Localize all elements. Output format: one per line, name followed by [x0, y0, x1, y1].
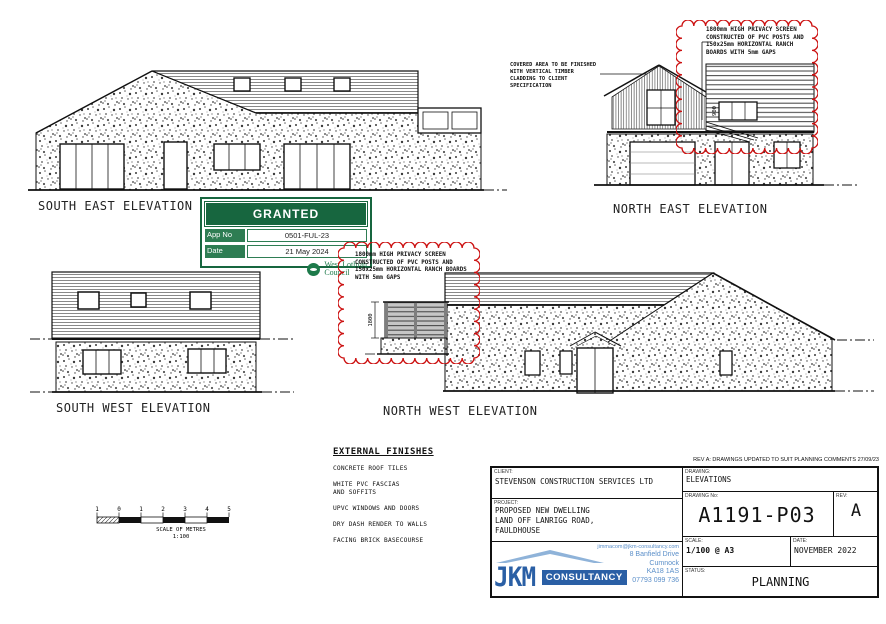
- finish-item: UPVC WINDOWS AND DOORS: [333, 505, 483, 513]
- west-lothian-council-logo-icon: [307, 263, 320, 276]
- scale-bar: 1 0 1 2 3 4 5 SCALE OF METRES 1:100: [93, 503, 243, 541]
- external-finishes-list: EXTERNAL FINISHES CONCRETE ROOF TILES WH…: [333, 447, 483, 545]
- revision-note: REV A: DRAWINGS UPDATED TO SUIT PLANNING…: [490, 457, 879, 463]
- date-label: DATE:: [791, 537, 878, 544]
- privacy-screen-note-nw: 1800mm HIGH PRIVACY SCREEN CONSTRUCTED O…: [355, 252, 467, 282]
- south-west-elevation-label: SOUTH WEST ELEVATION: [56, 401, 211, 415]
- scale-number: 1: [95, 506, 99, 513]
- app-no-label: App No: [205, 229, 245, 242]
- finish-item: FACING BRICK BASECOURSE: [333, 537, 483, 545]
- date-label: Date: [205, 245, 245, 258]
- jkm-logo-text: JKM: [494, 562, 535, 593]
- client-value: STEVENSON CONSTRUCTION SERVICES LTD: [492, 477, 682, 486]
- contact-phone: 07793 099 736: [597, 577, 679, 586]
- scale-number: 1: [139, 506, 143, 513]
- scale-number: 3: [183, 506, 187, 513]
- contact-email: jimmacom@jkm-consultancy.com: [597, 544, 679, 551]
- finish-item: CONCRETE ROOF TILES: [333, 465, 483, 473]
- scale-number: 0: [117, 506, 121, 513]
- scale-label: SCALE:: [683, 537, 790, 544]
- status-value: PLANNING: [683, 575, 878, 589]
- external-finishes-title: EXTERNAL FINISHES: [333, 447, 483, 457]
- south-east-elevation-label: SOUTH EAST ELEVATION: [38, 199, 193, 213]
- project-label: PROJECT:: [492, 499, 682, 506]
- drawing-sheet: SOUTH EAST ELEVATION GRANTED App No 0501…: [0, 0, 886, 624]
- rev-label: REV:: [834, 492, 878, 499]
- drawing-label: DRAWING:: [683, 468, 878, 475]
- drawing-no-value: A1191-P03: [683, 503, 831, 527]
- scale-ratio: 1:100: [173, 534, 190, 540]
- north-east-elevation-label: NORTH EAST ELEVATION: [613, 202, 768, 216]
- app-no-value: 0501-FUL-23: [247, 229, 367, 242]
- finish-item: DRY DASH RENDER TO WALLS: [333, 521, 483, 529]
- client-label: CLIENT:: [492, 468, 682, 475]
- scale-number: 4: [205, 506, 209, 513]
- contact-address1: 8 Banfield Drive: [597, 551, 679, 560]
- scale-number: 5: [227, 506, 231, 513]
- consultancy-contact: jimmacom@jkm-consultancy.com 8 Banfield …: [597, 544, 679, 586]
- privacy-screen-note-ne: 1800mm HIGH PRIVACY SCREEN CONSTRUCTED O…: [706, 27, 814, 57]
- covered-area-note: COVERED AREA TO BE FINISHED WITH VERTICA…: [510, 62, 602, 90]
- project-value: PROPOSED NEW DWELLING LAND OFF LANRIGG R…: [492, 506, 682, 535]
- contact-postcode: KA18 1AS: [597, 568, 679, 577]
- date-value: NOVEMBER 2022: [791, 546, 878, 555]
- scale-caption: SCALE OF METRES: [156, 527, 206, 533]
- south-east-elevation-drawing: [22, 58, 507, 198]
- status-label: STATUS:: [683, 567, 878, 574]
- contact-address2: Cumnock: [597, 560, 679, 569]
- granted-stamp-title: GRANTED: [205, 202, 367, 226]
- scale-value: 1/100 @ A3: [683, 546, 790, 555]
- scale-number: 2: [161, 506, 165, 513]
- title-block: CLIENT: STEVENSON CONSTRUCTION SERVICES …: [490, 466, 879, 598]
- south-west-elevation-drawing: [30, 262, 295, 407]
- finish-item: WHITE PVC FASCIAS AND SOFFITS: [333, 481, 483, 497]
- drawing-value: ELEVATIONS: [683, 475, 878, 484]
- rev-value: A: [834, 501, 878, 521]
- north-west-elevation-label: NORTH WEST ELEVATION: [383, 404, 538, 418]
